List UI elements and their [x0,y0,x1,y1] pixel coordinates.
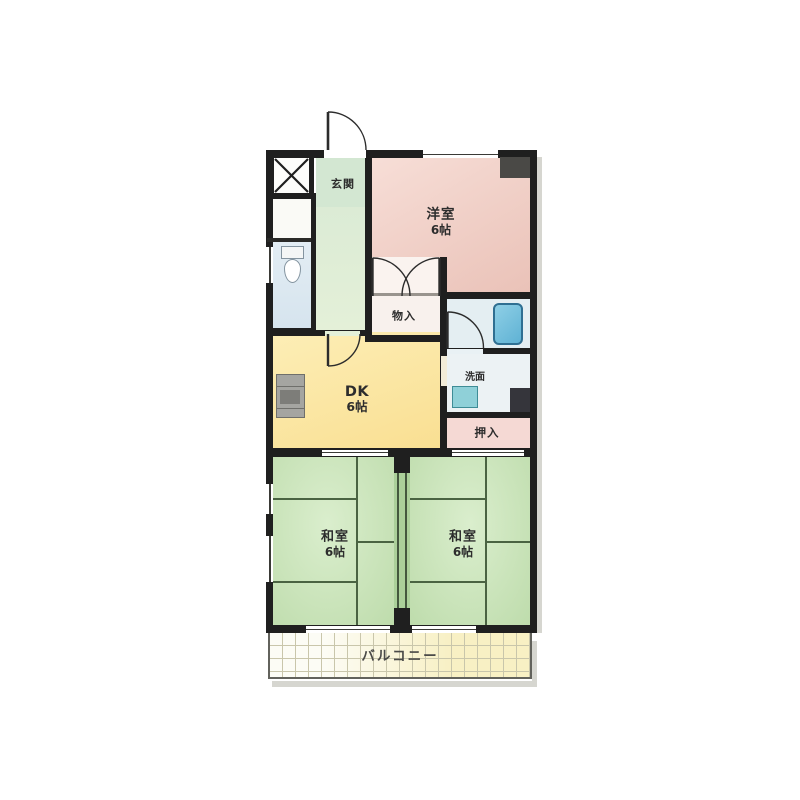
kitchen-counter-line [277,408,304,409]
oshiire-label: 押入 [475,427,500,439]
balcony-slider-right-line [412,629,476,631]
pipe-shaft-dark-block [510,388,530,412]
wall-right [530,150,537,633]
balcony-slider-left-line [306,629,390,631]
wall-corridor-left [311,198,316,332]
bath-door-opening [447,349,483,354]
balcony-shadow-bottom [272,681,537,687]
building-shadow-right [537,157,542,633]
toilet-tank-icon [281,246,304,259]
balcony-shadow-right [532,641,537,685]
fusuma-stub-top [394,448,410,473]
youshitsu-size: 6帖 [431,224,451,236]
tatami-line [487,541,530,543]
dk-name: DK [345,385,369,400]
tatami-line [273,581,356,583]
washitsu-right-size: 6帖 [453,546,473,558]
wall-corridor-right [365,157,372,342]
tatami-line [273,498,356,500]
bathtub-icon [493,303,523,345]
fusuma-partition-line-right [405,470,407,610]
wall-toilet-top [267,238,311,242]
entry-door-swing [328,112,366,150]
shaft-x-box [269,153,314,198]
dk-door-opening [325,331,360,336]
tatami-line [358,541,394,543]
wall-monoire-bath-left [440,257,447,354]
tatami-line [410,581,485,583]
senmen-door-opening [441,356,448,386]
wall-senmen-bottom [440,412,537,418]
genkan-label: 玄関 [331,179,355,190]
washitsu-left-name: 和室 [321,531,349,544]
washbasin-icon [452,386,478,408]
oshiire-fusuma-line [452,452,524,454]
youshitsu-name: 洋室 [427,208,456,222]
wall-monoire-bottom [365,335,447,342]
dk-size: 6帖 [346,401,367,414]
shoe-storage-space [273,198,311,238]
entry-door-opening [324,150,366,158]
youshitsu-top-window-line [423,154,498,156]
floorplan-canvas: 玄関 洋室 6帖 物入 DK 6帖 洗面 押入 和室 6帖 和室 6帖 バルコニ… [0,0,800,800]
tatami-line [410,498,485,500]
washitsu-left-size: 6帖 [325,546,345,558]
senmen-side-shelf [512,354,530,388]
fusuma-stub-bottom [394,608,410,633]
monoire-door-recess [372,257,440,297]
balcony-label: バルコニー [361,650,438,664]
wall-toilet-bottom [266,328,311,336]
kitchen-sink [280,390,300,404]
corner-column [500,157,530,178]
fusuma-partition-line-left [397,470,399,610]
toilet-window-line [269,247,271,283]
wall-youshitsu-bottom [440,292,537,299]
washitsu-left-window-line [269,484,271,514]
washitsu-left-window-line [269,536,271,582]
senmen-label: 洗面 [465,373,485,383]
washitsu-right-name: 和室 [449,531,477,544]
monoire-label: 物入 [392,311,416,322]
kitchen-counter-line [277,386,304,387]
dk-washitsu-fusuma-line [322,452,388,454]
